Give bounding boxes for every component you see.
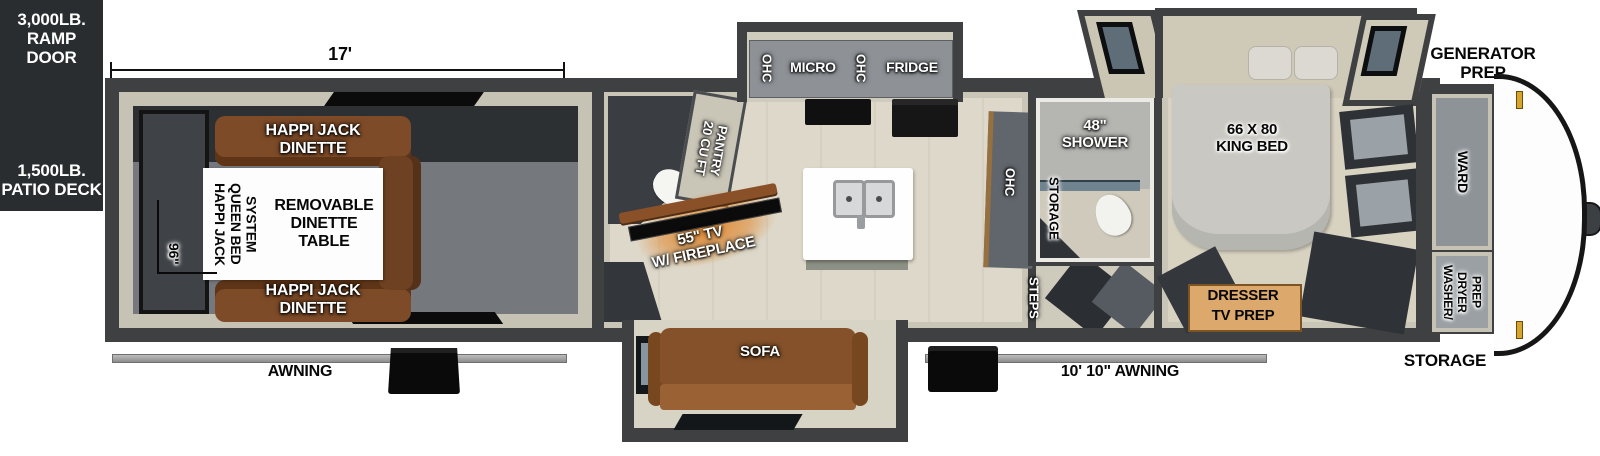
sofa-slide: SOFA xyxy=(622,320,908,442)
window-pane xyxy=(1356,179,1412,226)
garage-room: HAPPI JACK DINETTE HAPPI JACK DINETTE HA… xyxy=(119,92,592,328)
marker-light xyxy=(1516,91,1523,109)
bath-storage-label: STORAGE xyxy=(1042,162,1064,254)
steps-area xyxy=(1036,266,1154,328)
tv-prep-label: TV PREP xyxy=(1190,308,1296,325)
window xyxy=(1361,26,1408,76)
awning-left-bar xyxy=(112,354,567,363)
steps-label: STEPS xyxy=(1022,272,1044,324)
garage-width-dimension xyxy=(157,200,159,274)
micro-label: MICRO xyxy=(780,41,846,95)
drain xyxy=(846,196,852,202)
faucet xyxy=(857,216,865,229)
storage-rear-label: STORAGE xyxy=(1385,351,1505,370)
dresser-label: DRESSER xyxy=(1190,288,1296,305)
awning-right-label: 10' 10" AWNING xyxy=(1010,363,1230,381)
sofa-seat xyxy=(660,384,856,410)
queen-bed-system-label: HAPPI JACK QUEEN BED SYSTEM xyxy=(205,168,265,280)
ward-room: WARD xyxy=(1432,94,1492,250)
patio-deck-label: 1,500LB. PATIO DECK xyxy=(0,161,103,199)
garage-width-label: 96" xyxy=(161,232,185,276)
pillow xyxy=(1248,46,1292,80)
entry-step-right xyxy=(928,346,998,392)
kitchen-cabinet-band: OHC MICRO OHC FRIDGE xyxy=(749,40,953,98)
refrigerator xyxy=(892,99,958,137)
bedroom-window-panel xyxy=(1339,104,1419,169)
awning-left-label: AWNING xyxy=(230,363,370,381)
ramp-door-label: 3,000LB. RAMP DOOR xyxy=(0,10,103,67)
bedroom-window-panel xyxy=(1345,168,1423,237)
front-section: WARD WASHER/ DRYER PREP xyxy=(1424,84,1494,334)
shower-label: 48" SHOWER xyxy=(1050,118,1140,152)
ramp-door-interior xyxy=(139,110,209,314)
skylight xyxy=(324,92,484,106)
cooktop xyxy=(805,99,871,125)
ohc-mid-label: OHC xyxy=(848,41,872,95)
sink-left xyxy=(833,180,865,218)
washer-dryer-label: WASHER/ DRYER PREP xyxy=(1440,261,1484,323)
sofa-label: SOFA xyxy=(700,344,820,361)
pantry-label: 20 CU FT PANTRY xyxy=(682,97,740,201)
ramp-patio-block: 3,000LB. RAMP DOOR 1,500LB. PATIO DECK xyxy=(0,0,103,211)
generator-prep-label: GENERATOR PREP xyxy=(1408,44,1558,82)
kitchen-island xyxy=(803,168,913,260)
sink-right xyxy=(863,180,895,218)
dinette-table-label: REMOVABLE DINETTE TABLE xyxy=(265,168,383,280)
dinette-side xyxy=(379,156,421,290)
washer-dryer-room: WASHER/ DRYER PREP xyxy=(1432,252,1492,332)
bath-right-wall xyxy=(1154,92,1162,328)
ohc-counter-label: OHC xyxy=(994,141,1025,222)
window-pane xyxy=(1367,31,1402,71)
drain xyxy=(876,196,882,202)
sofa-armrest xyxy=(852,332,868,406)
fridge-label: FRIDGE xyxy=(876,41,948,95)
dimension-line xyxy=(110,69,565,71)
ward-label: WARD xyxy=(1442,107,1482,237)
bath-interior: 48" SHOWER STORAGE xyxy=(1036,98,1154,262)
garage-living-wall xyxy=(592,92,604,328)
marker-light xyxy=(1516,321,1523,339)
dimension-tick xyxy=(110,62,112,78)
garage-length-dimension xyxy=(110,62,565,78)
kitchen-slide: OHC MICRO OHC FRIDGE xyxy=(737,22,963,102)
dresser: DRESSER TV PREP xyxy=(1188,284,1302,332)
garage-length-label: 17' xyxy=(310,44,370,64)
front-cap xyxy=(1494,74,1587,356)
window-pane xyxy=(1102,27,1138,69)
pillow xyxy=(1294,46,1338,80)
dinette-table: HAPPI JACK QUEEN BED SYSTEM REMOVABLE DI… xyxy=(203,168,383,280)
bedroom-tv-panel xyxy=(1299,231,1418,334)
ohc-left-label: OHC xyxy=(754,41,778,95)
dimension-tick xyxy=(563,62,565,78)
king-bed xyxy=(1172,85,1330,250)
bath-room: 48" SHOWER STORAGE xyxy=(1028,92,1162,266)
sofa-rug xyxy=(673,414,802,430)
dinette-top-label: HAPPI JACK DINETTE xyxy=(215,122,411,158)
window-pane xyxy=(1350,114,1408,159)
entry-step-left xyxy=(388,348,460,394)
floorplan-canvas: 3,000LB. RAMP DOOR 1,500LB. PATIO DECK 1… xyxy=(0,0,1600,456)
king-bed-label: 66 X 80 KING BED xyxy=(1182,122,1322,156)
